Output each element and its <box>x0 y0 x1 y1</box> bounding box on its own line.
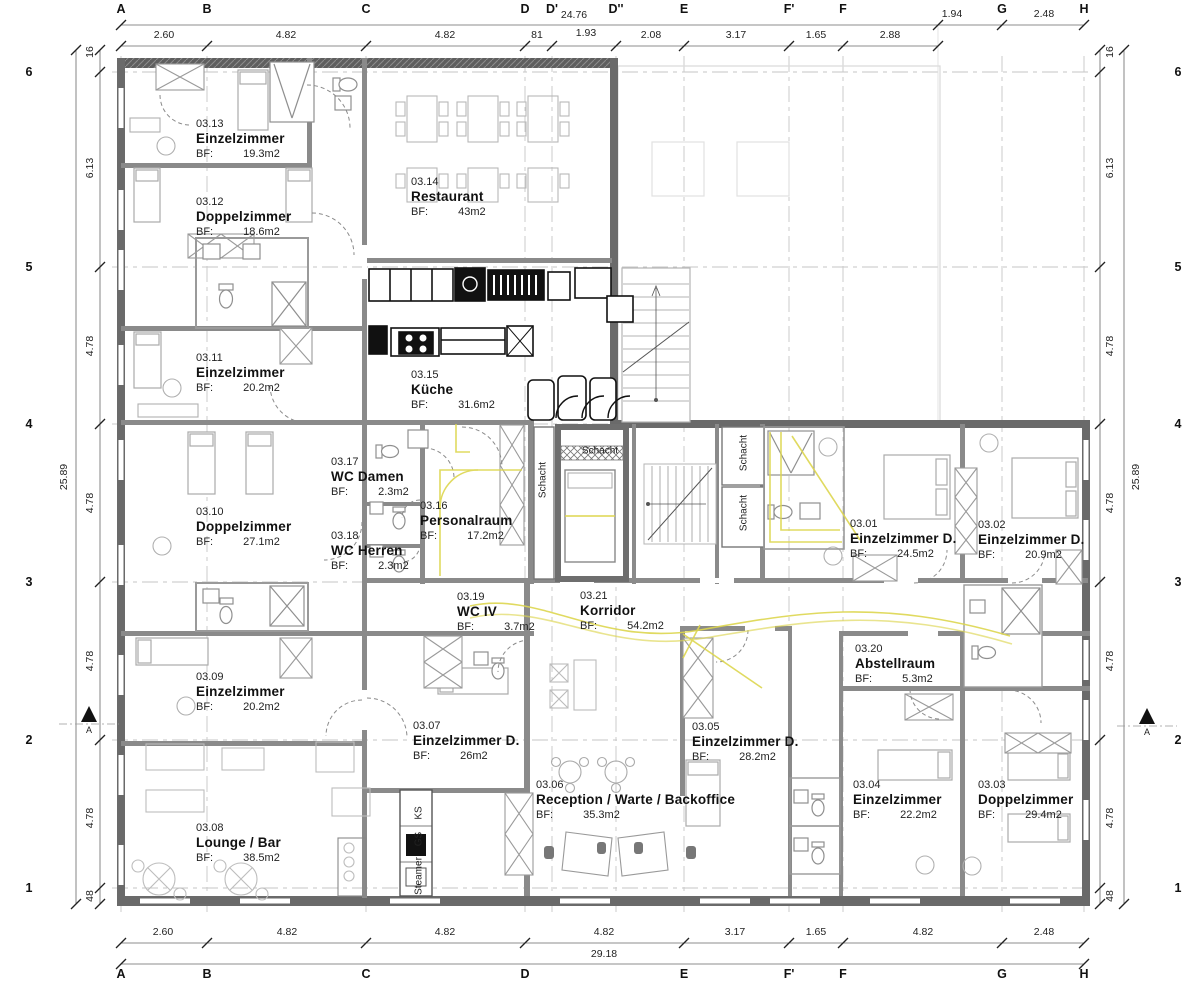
room-label-03-17: 03.17WC DamenBF:2.3m2 <box>331 456 409 500</box>
room-number: 03.02 <box>978 519 1085 532</box>
grid-column-label-top: H <box>1079 2 1088 16</box>
grid-column-label-top: F' <box>784 2 795 16</box>
room-number: 03.06 <box>536 779 735 792</box>
room-label-03-13: 03.13EinzelzimmerBF:19.3m2 <box>196 118 285 162</box>
room-area: BF:54.2m2 <box>580 620 664 633</box>
dimension-text: 2.08 <box>641 29 661 41</box>
room-label-03-07: 03.07Einzelzimmer D.BF:26m2 <box>413 720 520 764</box>
room-label-03-03: 03.03DoppelzimmerBF:29.4m2 <box>978 779 1073 823</box>
room-name: Einzelzimmer <box>196 131 285 147</box>
room-name: WC IV <box>457 604 535 620</box>
floor-plan-drawing: AA <box>0 0 1200 981</box>
dimension-text: 48 <box>84 890 96 902</box>
room-area: BF:20.9m2 <box>978 549 1085 562</box>
grid-row-label-left: 3 <box>26 575 33 589</box>
room-name: Doppelzimmer <box>978 792 1073 808</box>
room-number: 03.13 <box>196 118 285 131</box>
dimension-text: 2.88 <box>880 29 900 41</box>
room-number: 03.21 <box>580 590 664 603</box>
room-area: BF:27.1m2 <box>196 536 291 549</box>
room-area: BF:26m2 <box>413 750 520 763</box>
room-number: 03.07 <box>413 720 520 733</box>
dimension-text: 16 <box>1104 46 1116 58</box>
lounge-furniture <box>132 742 370 900</box>
room-number: 03.04 <box>853 779 942 792</box>
dimension-text: 4.78 <box>1104 808 1116 828</box>
room-number: 03.10 <box>196 506 291 519</box>
room-label-03-04: 03.04EinzelzimmerBF:22.2m2 <box>853 779 942 823</box>
room-area: BF:17.2m2 <box>420 530 512 543</box>
dimension-text: 4.82 <box>276 29 296 41</box>
room-name: WC Herren <box>331 543 409 559</box>
grid-column-label-bottom: A <box>116 967 125 981</box>
room-label-03-19: 03.19WC IVBF:3.7m2 <box>457 591 535 635</box>
grid-row-label-right: 1 <box>1175 881 1182 895</box>
grid-row-label-right: 2 <box>1175 733 1182 747</box>
dimension-text: 1.93 <box>576 27 596 39</box>
room-number: 03.11 <box>196 352 285 365</box>
room-number: 03.09 <box>196 671 285 684</box>
room-label-03-08: 03.08Lounge / BarBF:38.5m2 <box>196 822 281 866</box>
room-name: Lounge / Bar <box>196 835 281 851</box>
annotation-gs: GS <box>414 832 425 846</box>
dimension-text: 16 <box>84 46 96 58</box>
dimension-text: 4.82 <box>594 926 614 938</box>
annotation-schacht: Schacht <box>739 495 750 531</box>
grid-column-label-bottom: F' <box>784 967 795 981</box>
grid-column-label-top: C <box>361 2 370 16</box>
room-label-03-20: 03.20AbstellraumBF:5.3m2 <box>855 643 935 687</box>
room-area: BF:28.2m2 <box>692 751 799 764</box>
room-name: Doppelzimmer <box>196 519 291 535</box>
room-label-03-18: 03.18WC HerrenBF:2.3m2 <box>331 530 409 574</box>
room-label-03-05: 03.05Einzelzimmer D.BF:28.2m2 <box>692 721 799 765</box>
dimension-text: 24.76 <box>561 9 587 21</box>
room-label-03-06: 03.06Reception / Warte / BackofficeBF:35… <box>536 779 735 823</box>
dimension-text: 3.17 <box>725 926 745 938</box>
dimension-text: 4.78 <box>1104 493 1116 513</box>
room-number: 03.15 <box>411 369 495 382</box>
grid-column-label-top: F <box>839 2 847 16</box>
grid-column-label-top: D' <box>546 2 558 16</box>
dimension-text: 81 <box>531 29 543 41</box>
grid-column-label-top: G <box>997 2 1007 16</box>
dimension-text: 2.48 <box>1034 926 1054 938</box>
svg-text:A: A <box>86 725 92 735</box>
dimension-text: 2.60 <box>154 29 174 41</box>
grid-column-label-top: D'' <box>609 2 624 16</box>
stairs-east <box>622 268 690 422</box>
room-name: Einzelzimmer <box>196 684 285 700</box>
dimension-text: 4.78 <box>84 336 96 356</box>
room-label-03-14: 03.14RestaurantBF:43m2 <box>411 176 486 220</box>
grid-row-label-left: 6 <box>26 65 33 79</box>
dimension-text: 4.78 <box>1104 651 1116 671</box>
dimension-text: 2.48 <box>1034 8 1054 20</box>
annotation-steamer: Steamer <box>414 857 425 895</box>
annotation-ks: KS <box>414 806 425 819</box>
room-name: WC Damen <box>331 469 409 485</box>
room-number: 03.18 <box>331 530 409 543</box>
dimension-text: 4.78 <box>84 651 96 671</box>
room-area: BF:20.2m2 <box>196 382 285 395</box>
annotation-schacht: Schacht <box>538 462 549 498</box>
grid-column-label-bottom: G <box>997 967 1007 981</box>
room-name: Einzelzimmer D. <box>850 531 957 547</box>
room-area: BF:29.4m2 <box>978 809 1073 822</box>
room-number: 03.08 <box>196 822 281 835</box>
dimension-text: 29.18 <box>591 948 617 960</box>
room-name: Korridor <box>580 603 664 619</box>
room-area: BF:19.3m2 <box>196 148 285 161</box>
dimension-text: 3.17 <box>726 29 746 41</box>
room-number: 03.03 <box>978 779 1073 792</box>
room-area: BF:18.6m2 <box>196 226 291 239</box>
grid-column-label-bottom: B <box>202 967 211 981</box>
dimension-text: 4.82 <box>913 926 933 938</box>
room-name: Einzelzimmer D. <box>413 733 520 749</box>
grid-row-label-right: 6 <box>1175 65 1182 79</box>
room-area: BF:31.6m2 <box>411 399 495 412</box>
annotation-schacht: Schacht <box>739 435 750 471</box>
grid-row-label-right: 3 <box>1175 575 1182 589</box>
dimension-text: 25.89 <box>1130 464 1142 490</box>
dimension-text: 25.89 <box>58 464 70 490</box>
dimension-text: 4.82 <box>435 926 455 938</box>
room-label-03-12: 03.12DoppelzimmerBF:18.6m2 <box>196 196 291 240</box>
room-area: BF:43m2 <box>411 206 486 219</box>
grid-row-label-left: 4 <box>26 417 33 431</box>
room-name: Restaurant <box>411 189 486 205</box>
room-name: Einzelzimmer D. <box>692 734 799 750</box>
dimension-text: 6.13 <box>84 158 96 178</box>
room-label-03-16: 03.16PersonalraumBF:17.2m2 <box>420 500 512 544</box>
dimension-text: 6.13 <box>1104 158 1116 178</box>
dimension-text: 4.82 <box>277 926 297 938</box>
room-label-03-02: 03.02Einzelzimmer D.BF:20.9m2 <box>978 519 1085 563</box>
room-name: Personalraum <box>420 513 512 529</box>
dimension-text: 1.65 <box>806 29 826 41</box>
room-number: 03.14 <box>411 176 486 189</box>
grid-column-label-top: B <box>202 2 211 16</box>
room-label-03-09: 03.09EinzelzimmerBF:20.2m2 <box>196 671 285 715</box>
dimension-text: 1.94 <box>942 8 962 20</box>
room-name: Einzelzimmer D. <box>978 532 1085 548</box>
grid-row-label-right: 5 <box>1175 260 1182 274</box>
dimension-text: 4.78 <box>1104 336 1116 356</box>
kitchen-equipment <box>369 268 633 420</box>
grid-column-label-top: A <box>116 2 125 16</box>
grid-row-label-left: 2 <box>26 733 33 747</box>
grid-column-label-top: D <box>520 2 529 16</box>
room-label-03-15: 03.15KücheBF:31.6m2 <box>411 369 495 413</box>
room-number: 03.20 <box>855 643 935 656</box>
grid-column-label-top: E <box>680 2 688 16</box>
room-number: 03.05 <box>692 721 799 734</box>
room-name: Einzelzimmer <box>196 365 285 381</box>
grid-column-label-bottom: H <box>1079 967 1088 981</box>
room-name: Küche <box>411 382 495 398</box>
grid-row-label-left: 5 <box>26 260 33 274</box>
room-area: BF:5.3m2 <box>855 673 935 686</box>
room-area: BF:2.3m2 <box>331 560 409 573</box>
room-area: BF:35.3m2 <box>536 809 735 822</box>
room-area: BF:22.2m2 <box>853 809 942 822</box>
room-label-03-10: 03.10DoppelzimmerBF:27.1m2 <box>196 506 291 550</box>
grid-row-label-right: 4 <box>1175 417 1182 431</box>
room-name: Reception / Warte / Backoffice <box>536 792 735 808</box>
dimension-text: 4.78 <box>84 493 96 513</box>
dimension-text: 1.65 <box>806 926 826 938</box>
annotation-schacht: Schacht <box>582 446 618 457</box>
floor-plan-canvas: AA AABBCCDDD'D''EEF'F'FFGGHH665544332211… <box>0 0 1200 981</box>
room-name: Abstellraum <box>855 656 935 672</box>
room-area: BF:20.2m2 <box>196 701 285 714</box>
room-number: 03.19 <box>457 591 535 604</box>
grid-column-label-bottom: E <box>680 967 688 981</box>
room-area: BF:2.3m2 <box>331 486 409 499</box>
room-number: 03.16 <box>420 500 512 513</box>
dimension-text: 48 <box>1104 890 1116 902</box>
room-name: Doppelzimmer <box>196 209 291 225</box>
stairs-core <box>644 464 716 544</box>
dimension-text: 4.82 <box>435 29 455 41</box>
svg-text:A: A <box>1144 727 1150 737</box>
grid-column-label-bottom: D <box>520 967 529 981</box>
room-area: BF:3.7m2 <box>457 621 535 634</box>
reception-desk <box>544 660 696 876</box>
grid-column-label-bottom: F <box>839 967 847 981</box>
room-label-03-01: 03.01Einzelzimmer D.BF:24.5m2 <box>850 518 957 562</box>
grid-column-label-bottom: C <box>361 967 370 981</box>
room-number: 03.01 <box>850 518 957 531</box>
room-area: BF:24.5m2 <box>850 548 957 561</box>
grid-row-label-left: 1 <box>26 881 33 895</box>
room-name: Einzelzimmer <box>853 792 942 808</box>
dimension-text: 2.60 <box>153 926 173 938</box>
room-label-03-21: 03.21KorridorBF:54.2m2 <box>580 590 664 634</box>
room-label-03-11: 03.11EinzelzimmerBF:20.2m2 <box>196 352 285 396</box>
room-number: 03.17 <box>331 456 409 469</box>
room-area: BF:38.5m2 <box>196 852 281 865</box>
room-number: 03.12 <box>196 196 291 209</box>
dimension-text: 4.78 <box>84 808 96 828</box>
